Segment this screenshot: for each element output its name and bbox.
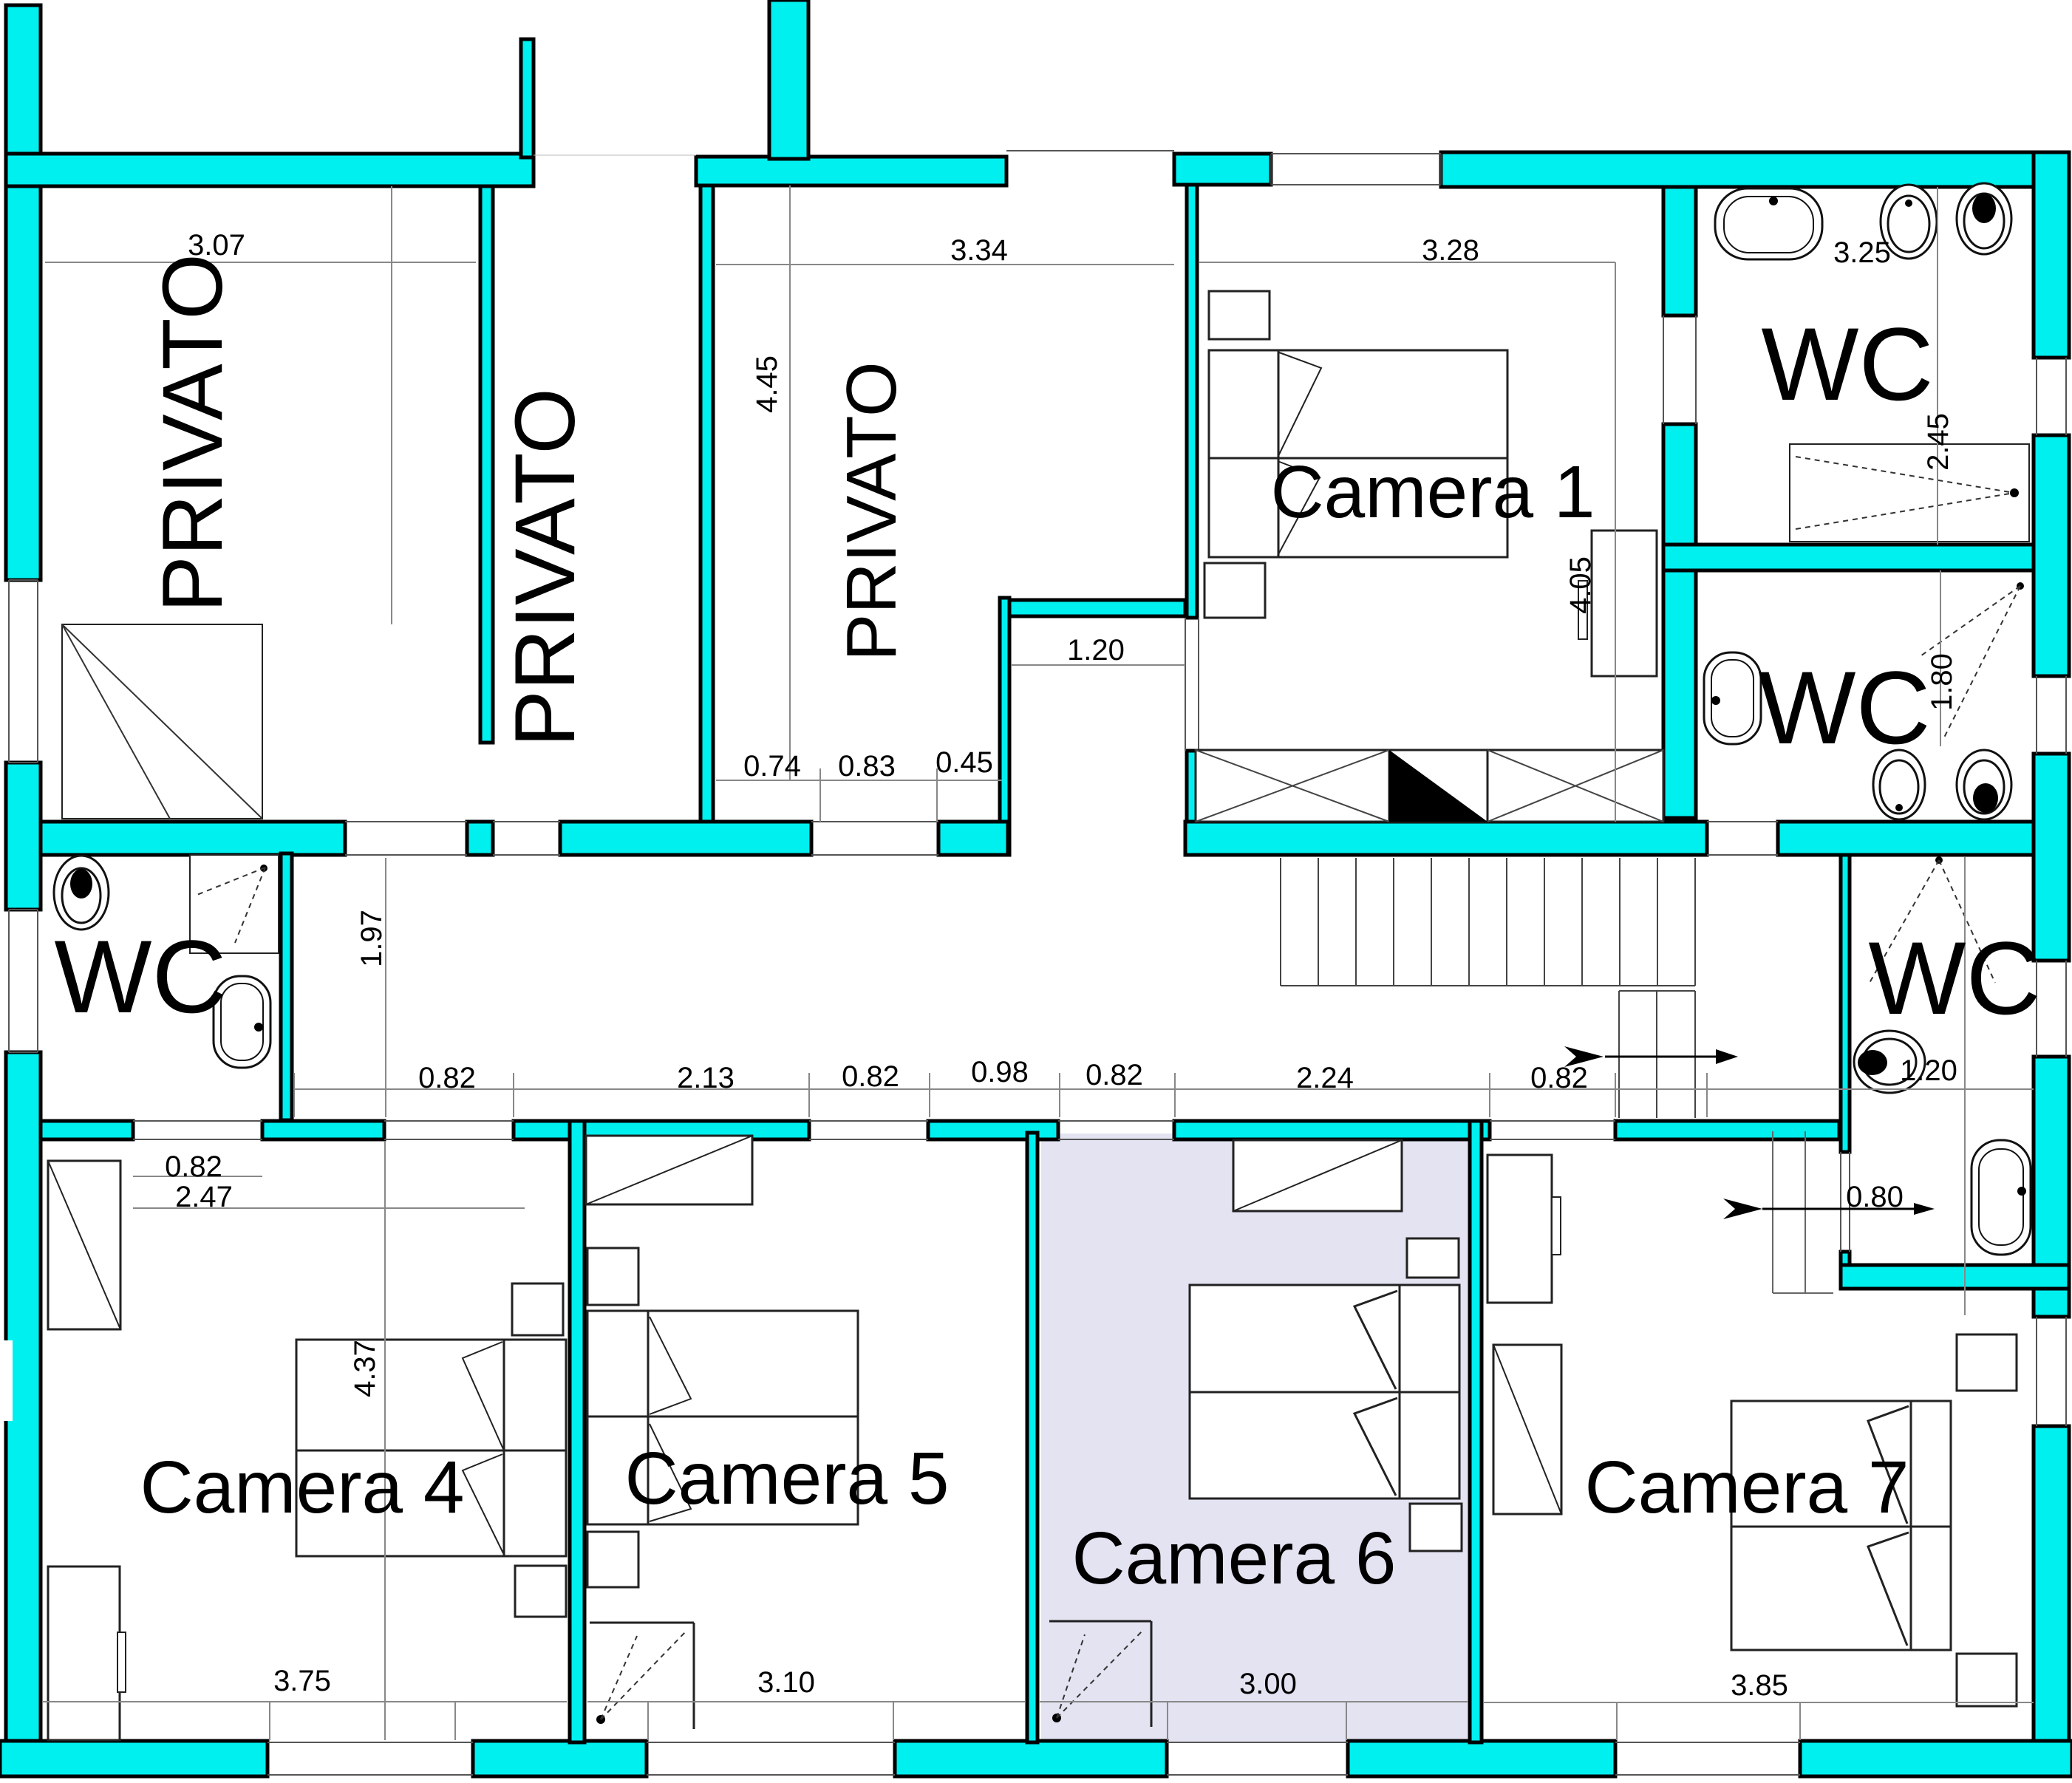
svg-text:Camera 4: Camera 4 [140, 1446, 464, 1529]
svg-text:3.75: 3.75 [273, 1665, 331, 1697]
svg-text:PRIVATO: PRIVATO [498, 388, 593, 747]
svg-text:2.45: 2.45 [1922, 413, 1955, 471]
svg-text:0.82: 0.82 [165, 1150, 222, 1183]
svg-text:3.25: 3.25 [1833, 236, 1891, 269]
svg-text:1.80: 1.80 [1926, 653, 1958, 711]
svg-text:PRIVATO: PRIVATO [832, 361, 911, 661]
svg-text:4.45: 4.45 [751, 355, 783, 413]
svg-text:WC: WC [1758, 650, 1930, 766]
svg-text:Camera 5: Camera 5 [624, 1437, 949, 1520]
svg-text:2.24: 2.24 [1296, 1062, 1354, 1094]
svg-text:0.83: 0.83 [838, 750, 896, 783]
svg-text:0.74: 0.74 [743, 750, 801, 783]
svg-text:WC: WC [1868, 920, 2040, 1036]
svg-text:PRIVATO: PRIVATO [146, 253, 240, 613]
svg-text:3.34: 3.34 [950, 234, 1008, 267]
svg-text:1.97: 1.97 [355, 910, 388, 967]
svg-text:1.20: 1.20 [1067, 634, 1125, 667]
svg-text:0.45: 0.45 [936, 746, 993, 779]
svg-text:WC: WC [1761, 306, 1933, 422]
svg-text:0.82: 0.82 [1530, 1062, 1588, 1094]
svg-text:WC: WC [54, 918, 226, 1034]
svg-text:3.10: 3.10 [757, 1666, 815, 1699]
svg-text:3.85: 3.85 [1731, 1669, 1788, 1702]
svg-text:0.98: 0.98 [971, 1056, 1029, 1088]
svg-text:0.82: 0.82 [1086, 1059, 1143, 1091]
svg-text:0.82: 0.82 [842, 1060, 899, 1093]
svg-text:1.20: 1.20 [1900, 1054, 1957, 1087]
svg-text:0.80: 0.80 [1846, 1181, 1904, 1213]
svg-text:Camera 1: Camera 1 [1270, 451, 1595, 533]
svg-text:0.82: 0.82 [418, 1062, 476, 1094]
svg-text:3.00: 3.00 [1239, 1668, 1297, 1700]
svg-text:4.37: 4.37 [349, 1340, 381, 1397]
svg-text:3.07: 3.07 [188, 229, 245, 262]
svg-text:Camera 7: Camera 7 [1584, 1446, 1909, 1529]
svg-text:4.05: 4.05 [1564, 556, 1597, 614]
svg-text:3.28: 3.28 [1422, 234, 1479, 267]
svg-text:Camera 6: Camera 6 [1071, 1517, 1396, 1600]
svg-text:2.13: 2.13 [677, 1062, 735, 1094]
svg-text:2.47: 2.47 [175, 1181, 233, 1213]
